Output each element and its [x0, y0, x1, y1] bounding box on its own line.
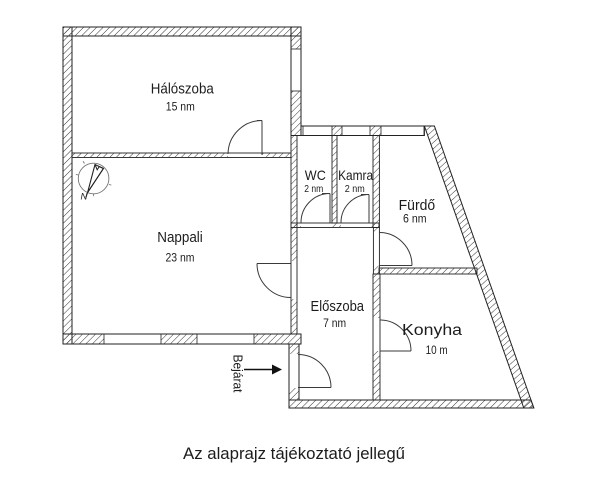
svg-text:6 nm: 6 nm: [403, 214, 427, 226]
svg-text:Konyha: Konyha: [402, 322, 462, 339]
svg-text:Bejárat: Bejárat: [231, 355, 245, 394]
svg-text:2 nm: 2 nm: [345, 183, 365, 195]
svg-text:Nappali: Nappali: [157, 229, 203, 246]
svg-text:Fürdő: Fürdő: [399, 197, 436, 214]
svg-text:10 m: 10 m: [426, 345, 448, 357]
svg-text:7 nm: 7 nm: [323, 318, 346, 330]
svg-text:WC: WC: [305, 167, 326, 183]
svg-text:15 nm: 15 nm: [166, 100, 195, 114]
svg-text:Előszoba: Előszoba: [311, 298, 365, 315]
svg-text:23 nm: 23 nm: [166, 251, 195, 265]
svg-text:N: N: [81, 192, 88, 203]
svg-text:2 nm: 2 nm: [304, 183, 323, 195]
svg-text:Az alaprajz tájékoztató jelleg: Az alaprajz tájékoztató jellegű: [183, 445, 405, 463]
svg-text:Kamra: Kamra: [338, 167, 373, 183]
svg-text:Hálószoba: Hálószoba: [151, 81, 215, 98]
